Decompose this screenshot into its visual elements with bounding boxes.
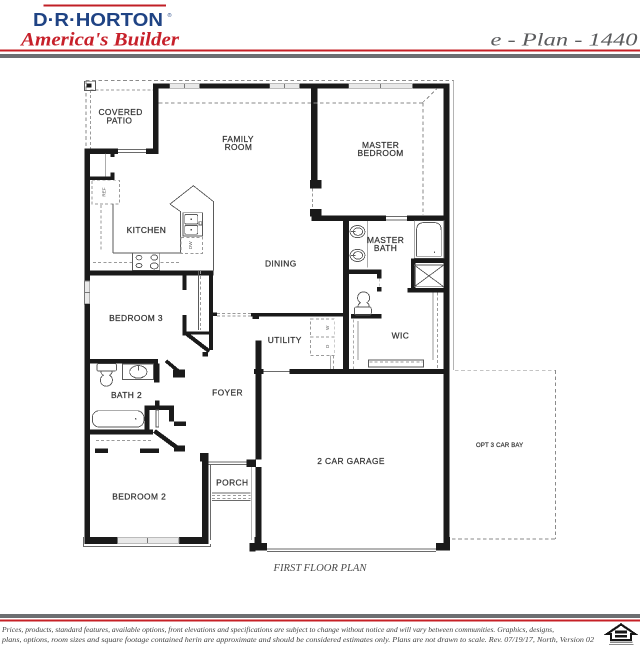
svg-text:KITCHEN: KITCHEN: [127, 225, 167, 235]
svg-text:BEDROOM 2: BEDROOM 2: [112, 491, 166, 501]
svg-text:plans, options, room sizes and: plans, options, room sizes and square fo…: [1, 635, 594, 644]
svg-text:W: W: [325, 325, 330, 330]
svg-text:BEDROOM: BEDROOM: [358, 148, 404, 158]
svg-text:BATH 2: BATH 2: [111, 390, 142, 400]
svg-text:FIRST FLOOR PLAN: FIRST FLOOR PLAN: [273, 562, 368, 574]
svg-text:FOYER: FOYER: [212, 388, 243, 398]
svg-text:PORCH: PORCH: [216, 477, 248, 487]
svg-text:BEDROOM 3: BEDROOM 3: [109, 313, 163, 323]
svg-text:Prices, products, standard fea: Prices, products, standard features, ava…: [1, 625, 554, 634]
svg-text:PATIO: PATIO: [106, 115, 132, 125]
svg-text:2 CAR GARAGE: 2 CAR GARAGE: [317, 456, 385, 466]
svg-text:e - Plan - 1440: e - Plan - 1440: [491, 30, 638, 50]
svg-text:UTILITY: UTILITY: [268, 335, 302, 345]
svg-text:ROOM: ROOM: [225, 142, 253, 152]
svg-text:OPT 3 CAR BAY: OPT 3 CAR BAY: [476, 443, 523, 449]
svg-text:America's Builder: America's Builder: [20, 30, 180, 51]
svg-text:BATH: BATH: [374, 243, 397, 253]
svg-text:WIC: WIC: [392, 330, 409, 340]
svg-text:D·R·HORTON: D·R·HORTON: [33, 9, 163, 30]
svg-text:DW: DW: [188, 241, 193, 249]
svg-text:®: ®: [168, 12, 172, 19]
svg-text:DINING: DINING: [265, 259, 297, 269]
svg-text:REF: REF: [102, 187, 107, 196]
